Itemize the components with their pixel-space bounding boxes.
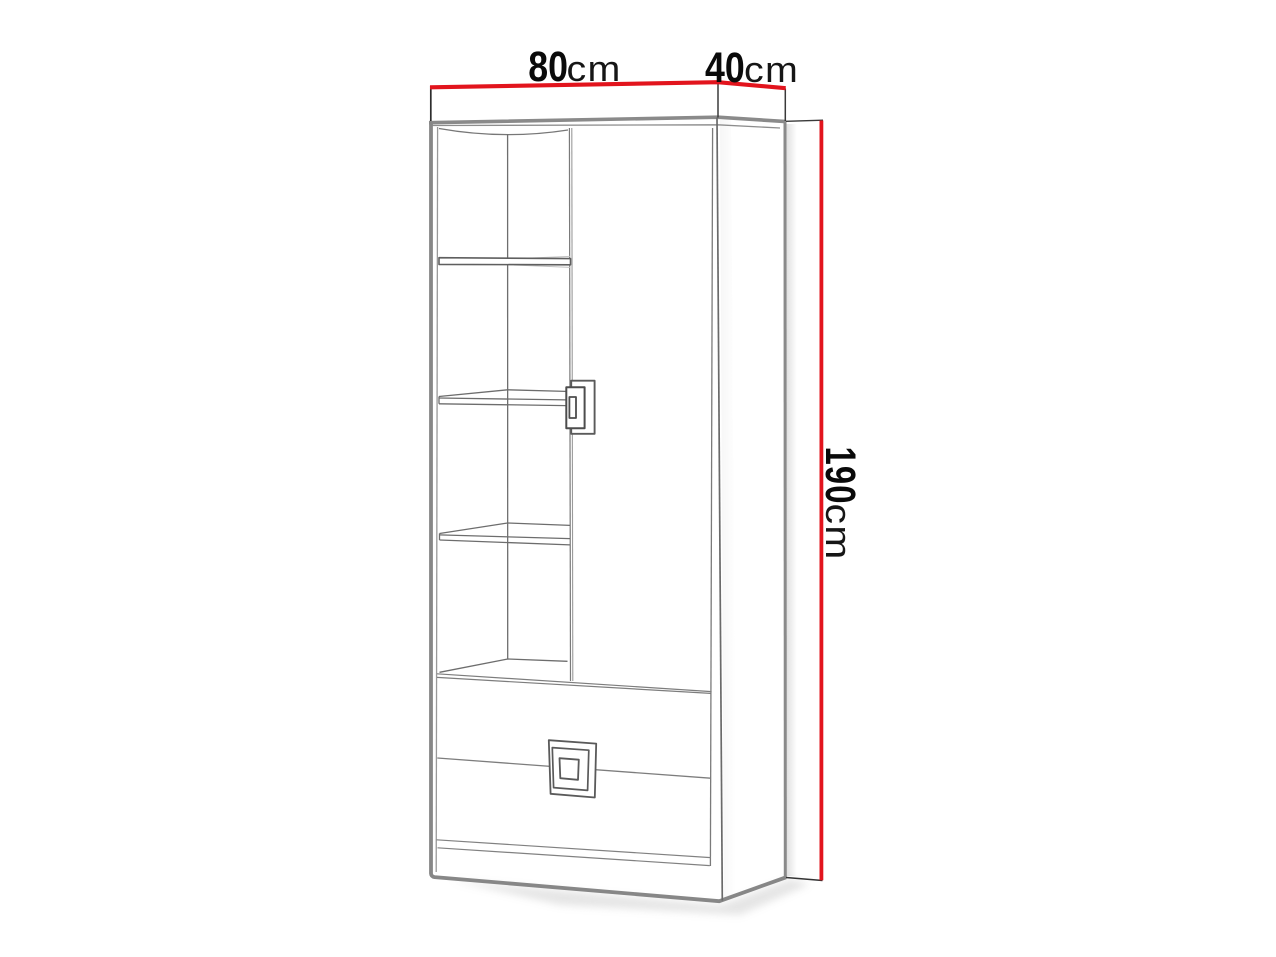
svg-text:40: 40 [705, 44, 745, 92]
svg-text:cm: cm [817, 504, 858, 561]
svg-text:80: 80 [528, 43, 568, 91]
svg-text:cm: cm [744, 50, 799, 90]
svg-text:190: 190 [816, 447, 863, 505]
svg-text:cm: cm [567, 49, 622, 89]
